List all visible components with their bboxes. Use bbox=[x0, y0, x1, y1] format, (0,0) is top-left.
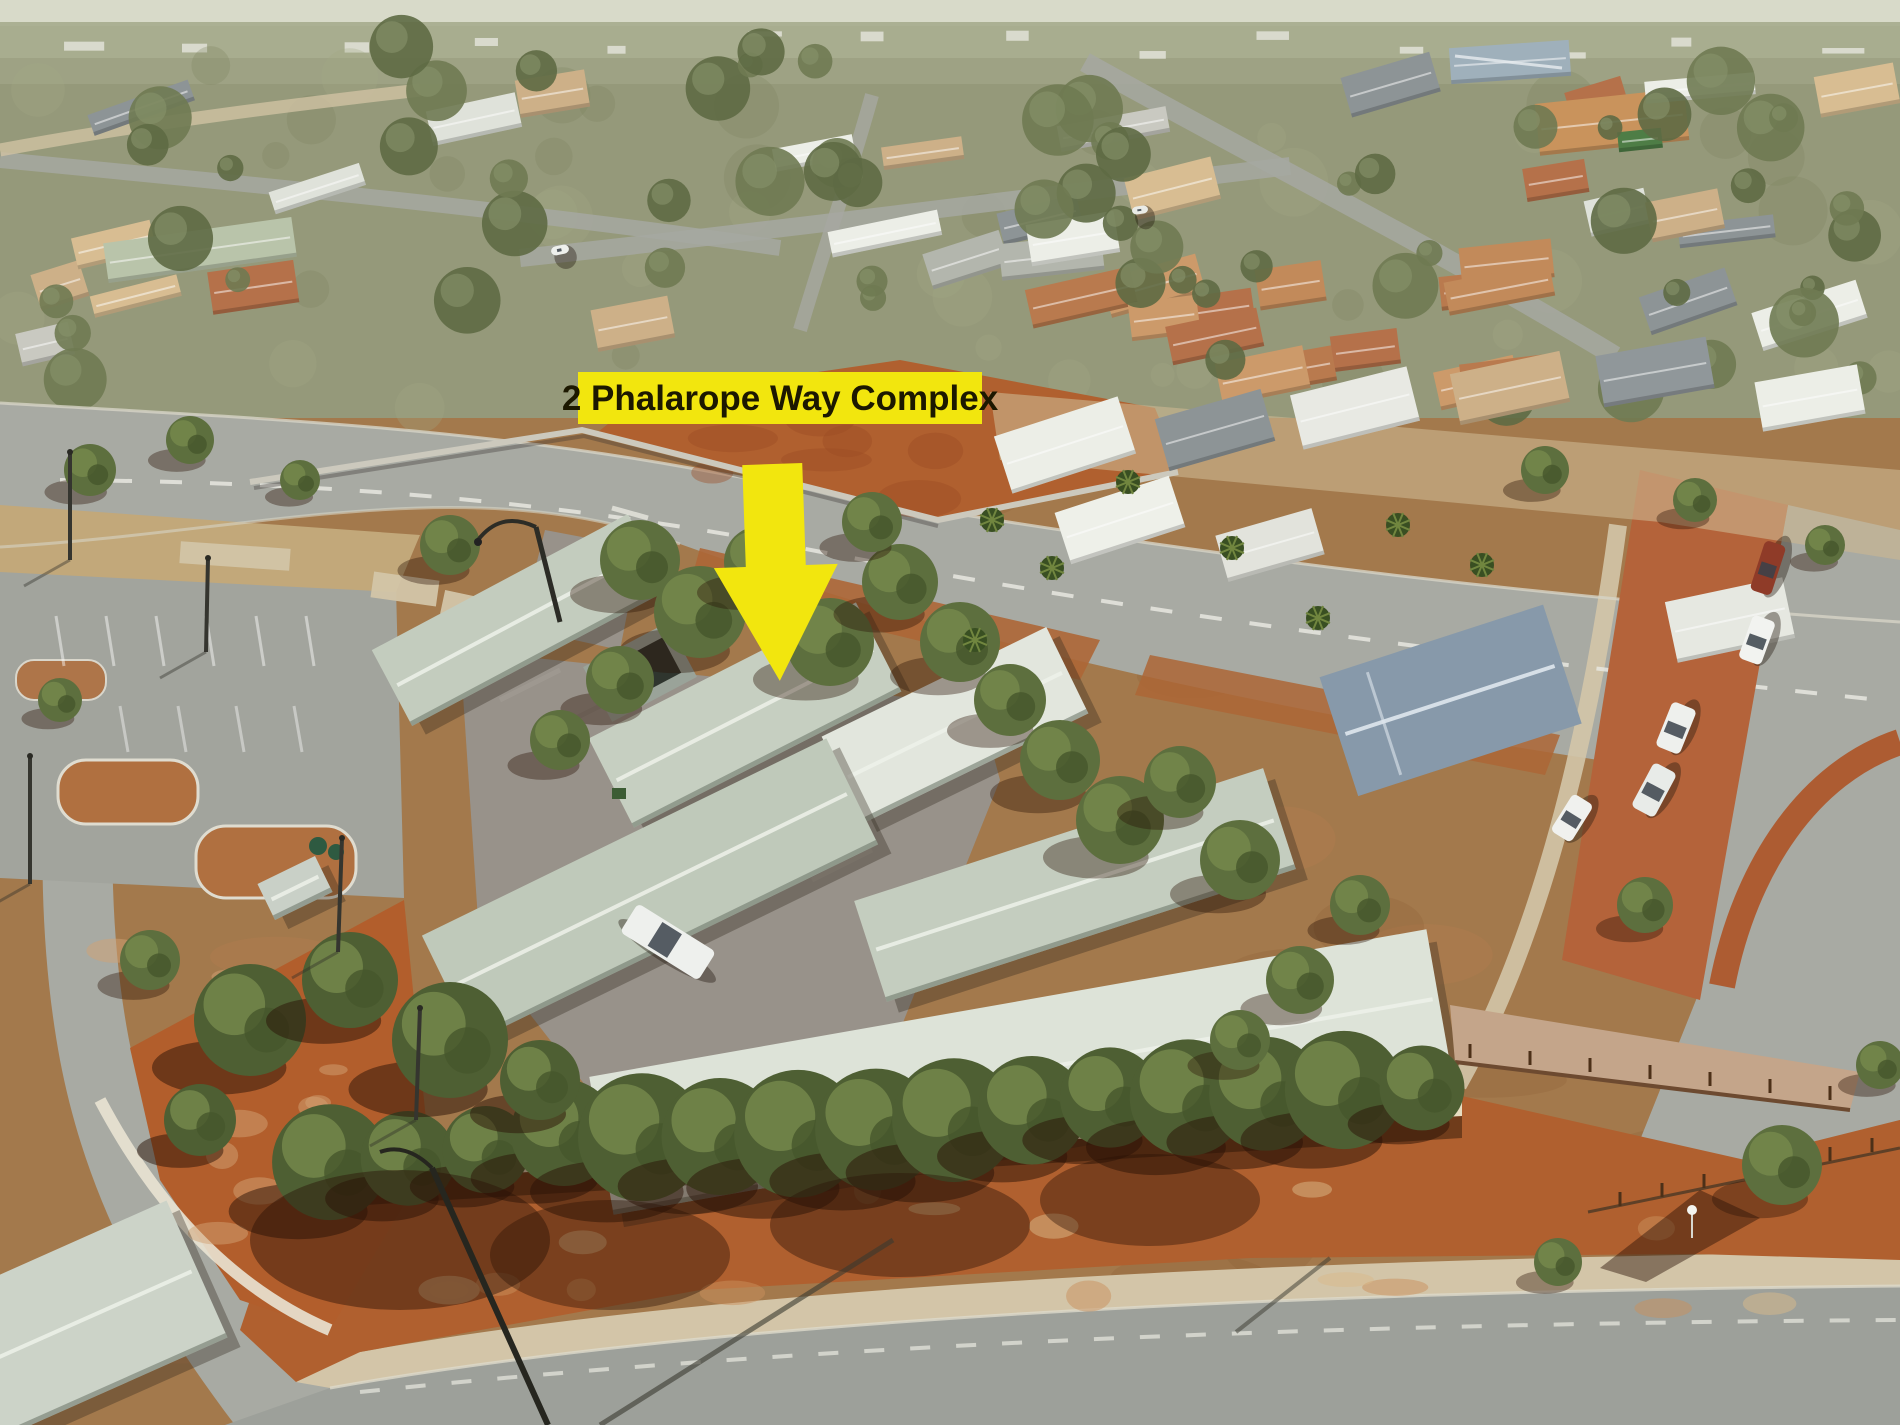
light-pole-head bbox=[67, 449, 73, 455]
aerial-photo-canvas: 2 Phalarope Way Complex bbox=[0, 0, 1900, 1425]
tree-highlight bbox=[1597, 194, 1630, 227]
light-pole-head bbox=[417, 1005, 423, 1011]
tree-shade bbox=[447, 538, 471, 562]
tree-highlight bbox=[1734, 172, 1751, 189]
tree-highlight bbox=[1379, 259, 1412, 292]
water-tank bbox=[309, 837, 327, 855]
tree-shade bbox=[896, 574, 926, 604]
tree-highlight bbox=[742, 154, 777, 189]
ground-mottle bbox=[11, 63, 65, 117]
tree-highlight bbox=[1020, 185, 1050, 215]
tree-shade bbox=[298, 476, 314, 492]
ground-mottle bbox=[535, 138, 573, 176]
tree-shade bbox=[536, 1071, 568, 1103]
distant-building bbox=[607, 46, 625, 54]
tree-shade bbox=[1556, 1257, 1575, 1276]
tree-shade bbox=[188, 435, 207, 454]
distant-building bbox=[1256, 31, 1288, 40]
tree-shade bbox=[1693, 495, 1711, 513]
tree-highlight bbox=[1195, 282, 1209, 296]
ground-mottle bbox=[430, 156, 466, 192]
ground-mottle bbox=[262, 142, 289, 169]
dirt-blotch bbox=[908, 433, 963, 470]
tree-highlight bbox=[652, 183, 674, 205]
tree-shade bbox=[1297, 973, 1324, 1000]
tree-highlight bbox=[1339, 174, 1351, 186]
tree-highlight bbox=[649, 252, 669, 272]
tree-shade bbox=[58, 695, 76, 713]
tree-highlight bbox=[1643, 93, 1670, 120]
tree-highlight bbox=[1101, 132, 1128, 159]
tree-highlight bbox=[154, 212, 187, 245]
tree-shade bbox=[1357, 898, 1381, 922]
distant-scrub bbox=[0, 22, 1900, 58]
tree-highlight bbox=[50, 354, 81, 385]
tree-shade bbox=[1236, 851, 1268, 883]
distant-building bbox=[1140, 51, 1166, 59]
parking-island bbox=[58, 760, 198, 824]
tree-highlight bbox=[1833, 195, 1850, 212]
tree-shadow-mass bbox=[770, 1173, 1030, 1277]
tree-highlight bbox=[810, 148, 839, 177]
marker-flag bbox=[1687, 1205, 1697, 1215]
ground-mottle bbox=[975, 335, 1001, 361]
distant-building bbox=[861, 32, 884, 42]
tree-shade bbox=[345, 969, 383, 1007]
grass-patch bbox=[1066, 1280, 1111, 1311]
tree-shade bbox=[1823, 541, 1839, 557]
tree-highlight bbox=[494, 163, 513, 182]
ground-mottle bbox=[269, 340, 316, 387]
ground-mottle bbox=[191, 46, 230, 85]
grass-patch bbox=[1634, 1298, 1691, 1318]
ground-mottle bbox=[1151, 363, 1175, 387]
tree-highlight bbox=[801, 47, 818, 64]
light-pole-head bbox=[339, 835, 345, 841]
tree-highlight bbox=[860, 269, 876, 285]
tree-highlight bbox=[1518, 109, 1540, 131]
ground-mottle bbox=[1493, 320, 1523, 350]
tree-highlight bbox=[1209, 344, 1229, 364]
tree-highlight bbox=[43, 288, 60, 305]
tree-highlight bbox=[1419, 243, 1432, 256]
tree-highlight bbox=[1029, 91, 1065, 127]
tree-shadow-mass bbox=[1040, 1154, 1260, 1246]
tree-highlight bbox=[1666, 282, 1680, 296]
tree-shade bbox=[1543, 465, 1562, 484]
tree-highlight bbox=[58, 319, 76, 337]
distant-building bbox=[1400, 47, 1423, 54]
distant-building bbox=[1671, 38, 1691, 47]
tree-highlight bbox=[488, 197, 521, 230]
tree-shade bbox=[869, 515, 893, 539]
distant-building bbox=[1006, 31, 1028, 41]
grass-patch bbox=[1318, 1272, 1374, 1287]
tree-shade bbox=[1778, 1156, 1810, 1188]
tree-shade bbox=[1237, 1033, 1261, 1057]
tree-shade bbox=[1878, 1060, 1897, 1079]
tree-highlight bbox=[1772, 106, 1786, 120]
tree-shade bbox=[1418, 1079, 1452, 1113]
tree-highlight bbox=[441, 274, 474, 307]
tree-highlight bbox=[1600, 118, 1612, 130]
ground-mottle bbox=[1332, 289, 1364, 321]
tree-highlight bbox=[1106, 209, 1124, 227]
tree-highlight bbox=[376, 21, 408, 53]
aerial-photo: 2 Phalarope Way Complex bbox=[0, 0, 1900, 1425]
tree-highlight bbox=[1244, 253, 1260, 269]
label-text: 2 Phalarope Way Complex bbox=[562, 379, 999, 418]
tree-shade bbox=[1006, 692, 1035, 721]
tree-shade bbox=[1642, 899, 1664, 921]
tree-highlight bbox=[135, 93, 167, 125]
light-pole-head bbox=[27, 753, 33, 759]
tree-shade bbox=[1056, 751, 1088, 783]
tree-shade bbox=[617, 673, 644, 700]
tree-shade bbox=[196, 1112, 225, 1141]
tree-highlight bbox=[131, 128, 152, 149]
tree-shade bbox=[1176, 774, 1205, 803]
tree-highlight bbox=[1172, 269, 1186, 283]
tree-shadow-mass bbox=[490, 1200, 730, 1310]
distant-building bbox=[1822, 48, 1864, 54]
tree-highlight bbox=[692, 63, 724, 95]
tree-highlight bbox=[520, 54, 541, 75]
tree-highlight bbox=[220, 157, 233, 170]
light-pole-head bbox=[205, 555, 211, 561]
tree-highlight bbox=[1694, 54, 1728, 88]
tree-shade bbox=[147, 953, 171, 977]
tree-shade bbox=[444, 1027, 490, 1073]
wheelie-bin bbox=[612, 788, 626, 799]
tree-highlight bbox=[1792, 302, 1805, 315]
tree-shade bbox=[636, 551, 668, 583]
tree-highlight bbox=[1136, 226, 1163, 253]
light-pole bbox=[206, 558, 208, 652]
tree-highlight bbox=[742, 33, 766, 57]
tree-shade bbox=[87, 464, 108, 485]
distant-building bbox=[64, 42, 104, 51]
street-light-head bbox=[474, 538, 482, 546]
tree-highlight bbox=[1359, 158, 1379, 178]
ground-mottle bbox=[395, 383, 445, 433]
tree-highlight bbox=[386, 123, 415, 152]
grass-patch bbox=[319, 1064, 348, 1075]
tree-shade bbox=[826, 632, 861, 667]
grass-patch bbox=[1743, 1292, 1797, 1315]
grass-patch bbox=[1292, 1181, 1332, 1197]
tree-highlight bbox=[228, 270, 240, 282]
dirt-blotch bbox=[688, 425, 778, 453]
tree-shade bbox=[557, 733, 581, 757]
distant-building bbox=[475, 38, 498, 46]
